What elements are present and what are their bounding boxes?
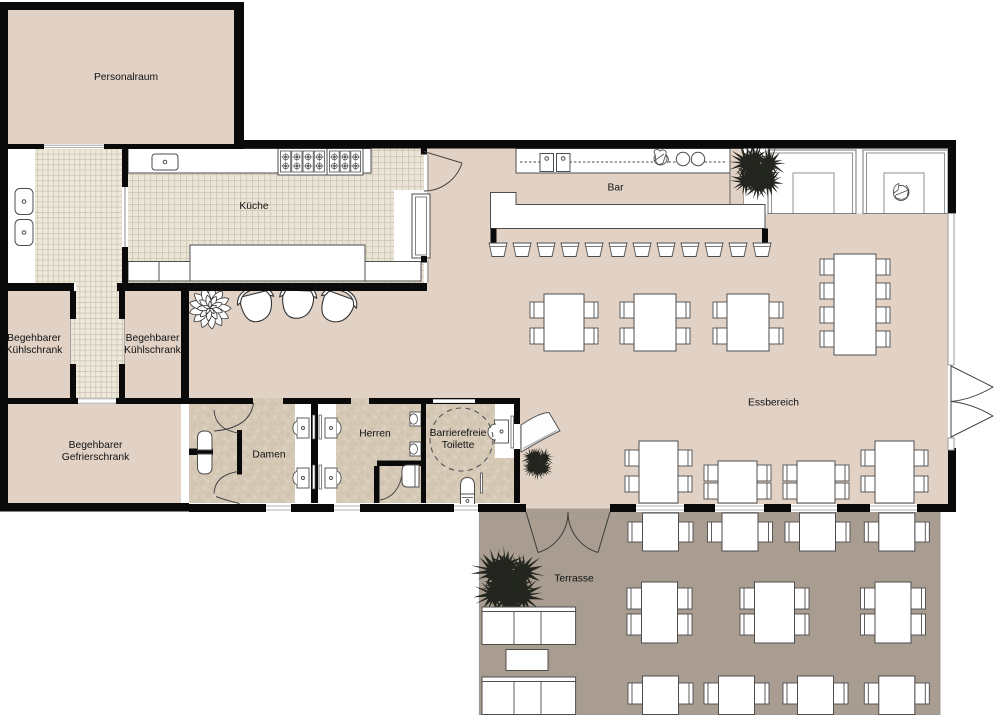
- svg-text:Herren: Herren: [359, 429, 391, 440]
- svg-text:Kühlschrank: Kühlschrank: [6, 345, 64, 356]
- svg-text:Toilette: Toilette: [442, 440, 475, 451]
- svg-text:Kühlschrank: Kühlschrank: [124, 345, 182, 356]
- svg-text:Begehbarer: Begehbarer: [126, 333, 180, 344]
- svg-text:Küche: Küche: [239, 201, 268, 212]
- svg-text:Essbereich: Essbereich: [748, 398, 799, 409]
- svg-text:Damen: Damen: [252, 450, 285, 461]
- svg-text:Terrasse: Terrasse: [554, 574, 594, 585]
- svg-text:Barrierefreie: Barrierefreie: [430, 428, 487, 439]
- svg-text:Bar: Bar: [607, 183, 624, 194]
- svg-text:Personalraum: Personalraum: [94, 72, 158, 83]
- svg-text:Begehbarer: Begehbarer: [69, 440, 123, 451]
- svg-text:Gefrierschrank: Gefrierschrank: [62, 452, 130, 463]
- svg-text:Begehbarer: Begehbarer: [7, 333, 61, 344]
